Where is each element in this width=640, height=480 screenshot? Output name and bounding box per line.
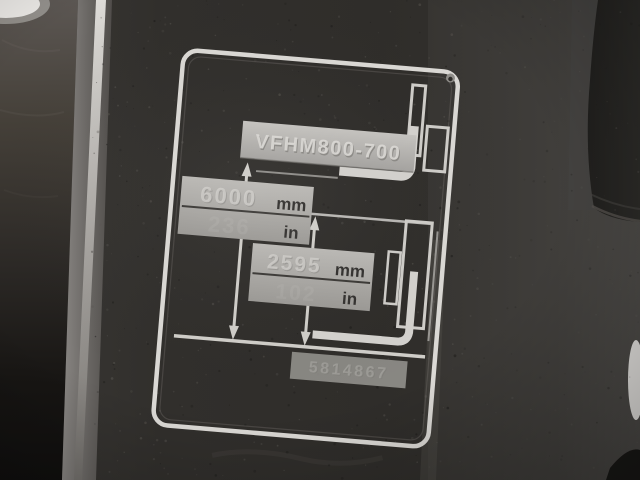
photo-canvas: VFHM800-700 VFHM800-700 6000 6000 mm 236… [0, 0, 640, 480]
vignette [0, 0, 640, 480]
